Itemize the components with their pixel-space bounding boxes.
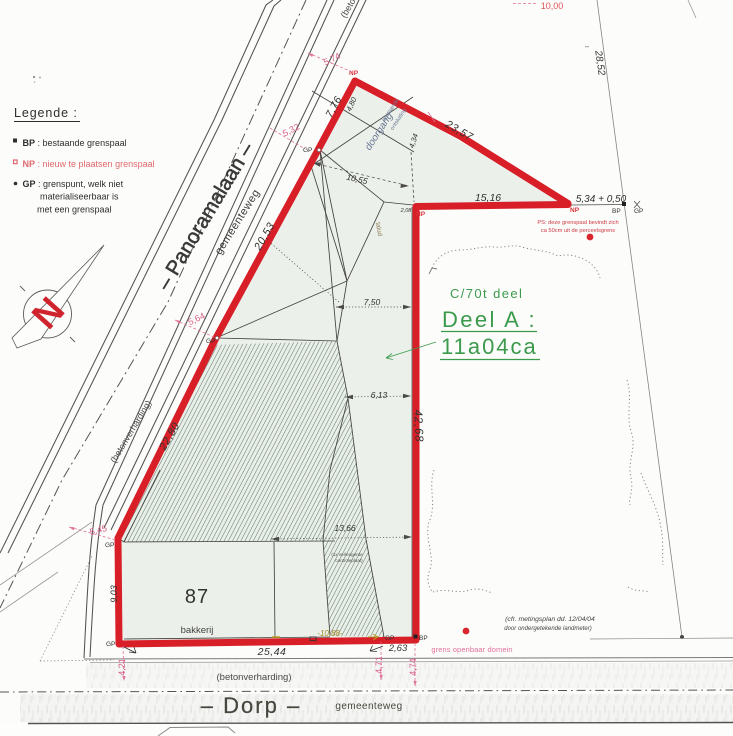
svg-text:15,16: 15,16 [475, 192, 501, 204]
svg-text:ca 50cm uit de perceelsgrens: ca 50cm uit de perceelsgrens [541, 228, 615, 234]
svg-text:(betonverharding): (betonverharding) [217, 672, 292, 683]
svg-text:GP: GP [206, 338, 215, 345]
svg-text:NP: NP [570, 207, 580, 214]
svg-text:PS: deze grenspaal bevindt zic: PS: deze grenspaal bevindt zich [537, 220, 618, 226]
svg-text:materialiseerbaar is: materialiseerbaar is [40, 192, 119, 202]
svg-text:9,03: 9,03 [109, 585, 119, 603]
svg-text:11a04ca: 11a04ca [441, 334, 538, 359]
svg-text:– Dorp –: – Dorp – [201, 693, 301, 718]
svg-text:BP: BP [419, 635, 428, 642]
svg-text:BP: BP [612, 208, 621, 215]
svg-text:grens openbaar domein: grens openbaar domein [431, 645, 512, 654]
svg-text:C/70t deel: C/70t deel [450, 286, 523, 301]
svg-text:87: 87 [185, 586, 209, 608]
svg-text:NP : nieuw te plaatsen grenspa: NP : nieuw te plaatsen grenspaal [23, 159, 155, 169]
svg-text:10,00: 10,00 [541, 1, 564, 11]
svg-text:GP : grenspunt, welk niet: GP : grenspunt, welk niet [23, 179, 124, 189]
svg-text:gemeenteweg: gemeenteweg [335, 701, 402, 712]
svg-text:(cfr. metingsplan dd. 12/04/04: (cfr. metingsplan dd. 12/04/04 [505, 616, 595, 623]
svg-text:2,08: 2,08 [400, 208, 413, 214]
svg-text:met een grenspaal: met een grenspaal [37, 205, 112, 215]
svg-text:door ondergetekende landmeter): door ondergetekende landmeter) [504, 626, 591, 632]
svg-text:6,13: 6,13 [371, 390, 388, 400]
svg-text:5,34 + 0,50: 5,34 + 0,50 [576, 194, 627, 205]
svg-text:controleplaat): controleplaat) [335, 558, 363, 563]
svg-text:BP : bestaande grenspaal: BP : bestaande grenspaal [23, 138, 127, 148]
svg-text:7,50: 7,50 [364, 297, 381, 307]
svg-text:2,63: 2,63 [388, 643, 408, 654]
svg-text:GP: GP [385, 635, 394, 642]
svg-text:bakkerij: bakkerij [181, 625, 214, 636]
svg-text:42,68: 42,68 [411, 409, 424, 442]
svg-text:(1x verlengerde: (1x verlengerde [331, 552, 363, 557]
svg-text:4,71: 4,71 [374, 656, 384, 674]
svg-text:Legende :: Legende : [14, 106, 78, 120]
svg-text:4,21: 4,21 [117, 658, 127, 676]
svg-text:GP: GP [106, 641, 115, 648]
svg-text:Deel A :: Deel A : [442, 307, 537, 332]
svg-text:25,44: 25,44 [257, 646, 287, 658]
svg-text:NP: NP [416, 211, 426, 218]
svg-text:GP: GP [303, 147, 312, 154]
svg-text:4,74: 4,74 [408, 658, 418, 676]
svg-text:GP: GP [105, 542, 114, 549]
svg-text:-10,88-: -10,88- [317, 629, 343, 638]
svg-text:13,66: 13,66 [334, 523, 356, 533]
svg-text:GP: GP [634, 208, 643, 215]
